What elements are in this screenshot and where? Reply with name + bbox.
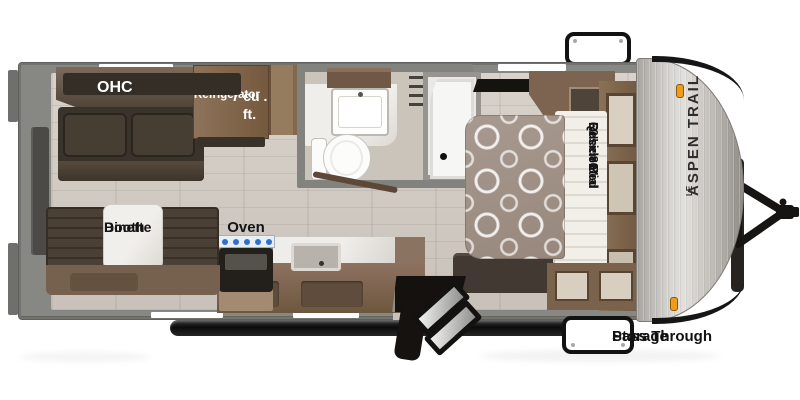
burner-icon [255,239,261,245]
dinette-bench [159,207,219,269]
cabinet-panel [555,271,589,301]
bathroom-sink [331,88,389,136]
dinette-bench-front [46,265,220,295]
clearance-light-icon [676,84,684,98]
sofa-cushion [63,113,127,157]
dinette-bench [46,207,108,269]
faucet-icon [358,92,363,97]
bathroom [297,64,473,188]
burner-icon [222,239,228,245]
screw-dot [571,343,575,347]
refrigerator-base [197,137,265,147]
clearance-light-icon [670,297,678,311]
trailer-body: OHC 7 cu . ft. Refrigerator [18,62,642,320]
front-cap-trim [652,278,744,324]
shelf [409,94,423,97]
queen-bed-label: 60" x 80" Residential Queen Bed [541,122,601,272]
screw-dot [573,39,577,43]
burner-strip [217,235,275,248]
sofa [58,107,204,181]
toilet-seat [330,140,363,176]
awning-rail [170,320,572,336]
ground-shadow [20,352,150,362]
sink-drain [319,261,324,266]
trailer-floorplan: OHC 7 cu . ft. Refrigerator [0,0,800,400]
bench-panel [70,273,138,291]
kitchen-sink [291,243,341,271]
sink-basin [338,96,382,128]
shelf [409,85,423,88]
burner-icon [244,239,250,245]
shower-drain [440,153,447,160]
oven-cooktop [217,235,275,299]
oven-label: Oven [211,219,281,236]
dinette-table: Booth Dinette [103,204,163,270]
medicine-cabinet [327,68,391,88]
sofa-cushion [131,113,195,157]
rear-bumper [8,243,18,315]
burner-icon [266,239,272,245]
wardrobe-panel [606,93,636,147]
wardrobe-panel [606,161,636,215]
burner-icon [233,239,239,245]
brand-label: ASPEN TRAILLE [685,111,707,281]
entry-steps [384,270,484,370]
rear-bumper [8,70,18,122]
ohc-label: OHC [97,79,133,97]
window [498,64,566,71]
cabinet-panel [301,281,363,307]
cabinet-panel [599,271,633,301]
window [151,312,223,318]
shelf [409,103,423,106]
pantry-cabinet [269,65,299,135]
oven-window [225,254,267,270]
screw-dot [619,39,623,43]
shelf [409,76,423,79]
oven-range [219,248,273,292]
storage-door [565,32,631,66]
overhead-cabinet-shelf [63,73,241,95]
sofa-front [58,161,204,181]
